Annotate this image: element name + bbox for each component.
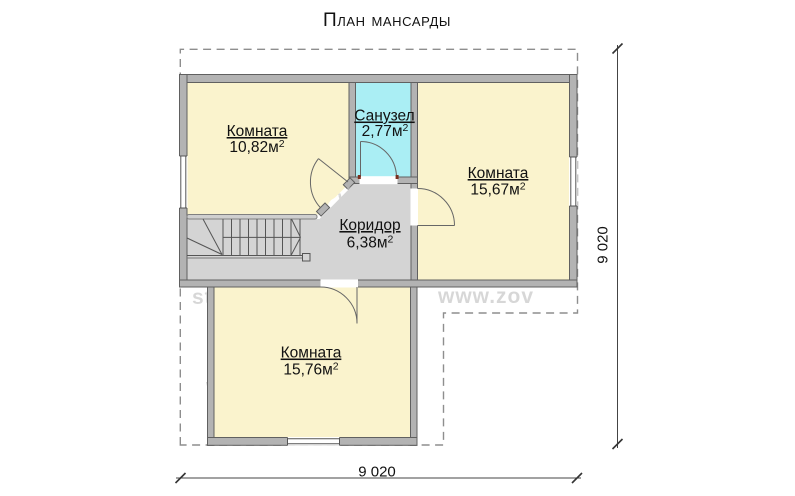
svg-text:Комната: Комната xyxy=(281,345,342,362)
svg-text:План мансарды: План мансарды xyxy=(323,10,451,31)
svg-text:www.zov: www.zov xyxy=(437,285,534,308)
svg-text:Коридор: Коридор xyxy=(339,217,400,234)
svg-text:6,38м2: 6,38м2 xyxy=(347,234,394,252)
svg-text:15,67м2: 15,67м2 xyxy=(470,181,525,199)
svg-text:Комната: Комната xyxy=(468,165,529,182)
svg-text:9 020: 9 020 xyxy=(595,226,612,264)
svg-text:10,82м2: 10,82м2 xyxy=(229,138,284,156)
svg-text:9 020: 9 020 xyxy=(358,464,396,481)
svg-text:15,76м2: 15,76м2 xyxy=(283,361,338,379)
svg-text:2,77м2: 2,77м2 xyxy=(362,122,409,140)
